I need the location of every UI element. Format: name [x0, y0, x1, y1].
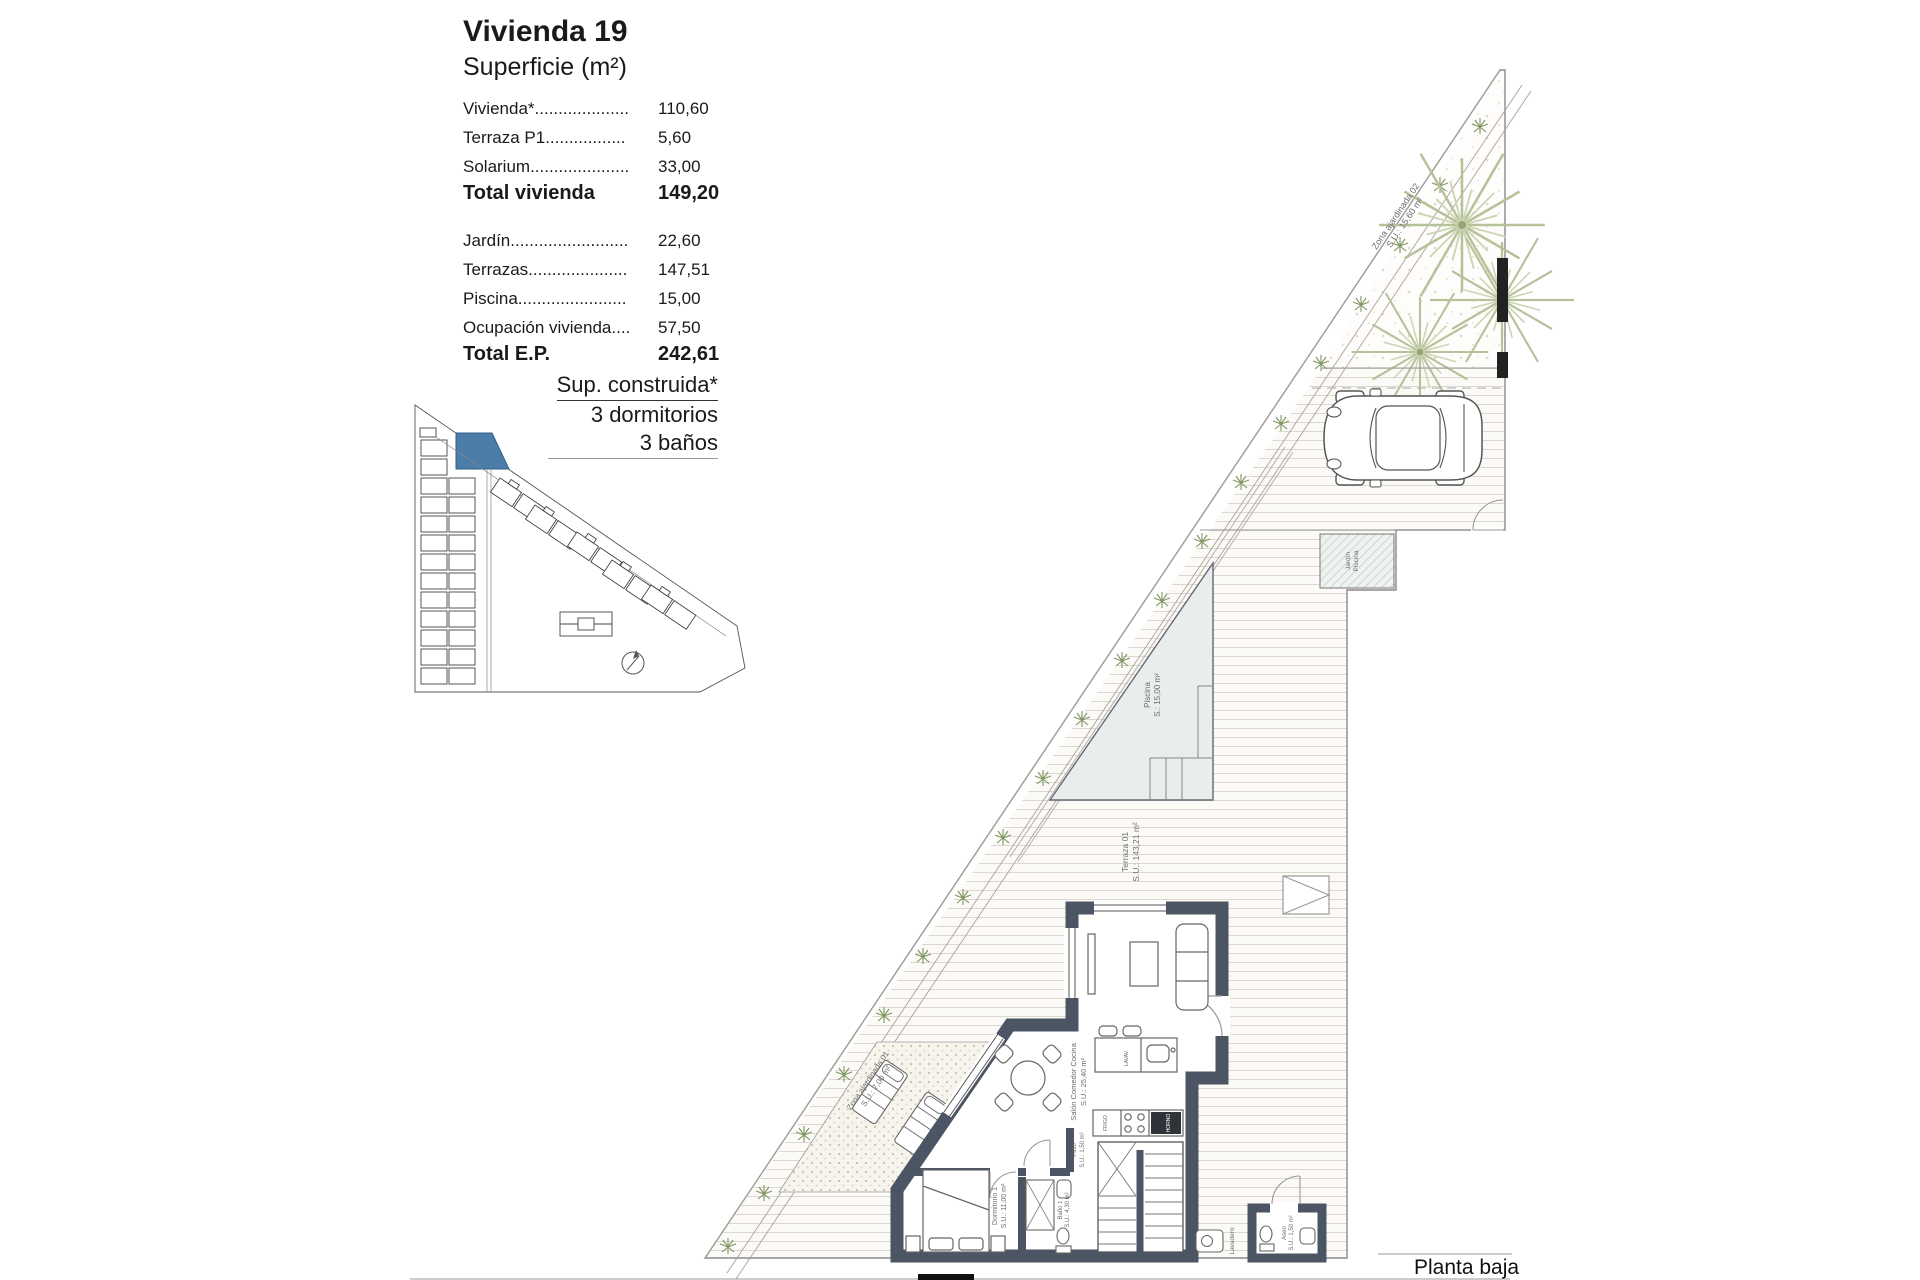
svg-text:S.: 15,00 m²: S.: 15,00 m² — [1153, 673, 1162, 717]
island-sink — [1147, 1045, 1169, 1062]
sink — [1300, 1228, 1315, 1244]
table-row: Vivienda*....................110,60 — [463, 98, 733, 119]
construida-heading: Sup. construida* — [557, 372, 718, 401]
minimap-central-building — [560, 612, 612, 636]
pillow — [959, 1238, 983, 1250]
coffee-table — [1130, 942, 1158, 986]
door-opening — [1026, 1166, 1050, 1178]
dishwasher-label: LAVAV. — [1124, 1050, 1130, 1066]
hob-burner — [1125, 1114, 1131, 1120]
table-row: Terraza P1.................5,60 — [463, 127, 733, 148]
svg-text:Piscina: Piscina — [1353, 550, 1360, 571]
window — [1064, 928, 1080, 998]
floor-plan-drawing: Zona ajardinada 02 S.U.: 15,60 m² — [0, 0, 1920, 1280]
oven-label: HORNO — [1166, 1114, 1172, 1133]
lavadero-label: Lavadero — [1229, 1227, 1236, 1254]
table-row: Jardín.........................22,60 — [463, 230, 733, 251]
table-row: Ocupación vivienda....57,50 — [463, 317, 733, 338]
toilet — [1260, 1226, 1272, 1242]
table-row: Terrazas.....................147,51 — [463, 259, 733, 280]
car — [1324, 389, 1482, 487]
hob-burner — [1125, 1126, 1131, 1132]
pillow — [929, 1238, 953, 1250]
wall-pier — [1497, 258, 1508, 322]
svg-text:S.U.: 143,21 m²: S.U.: 143,21 m² — [1131, 822, 1141, 882]
svg-text:Baño 1: Baño 1 — [1058, 1200, 1064, 1220]
svg-text:S.U.: 4,30 m²: S.U.: 4,30 m² — [1065, 1192, 1071, 1227]
svg-text:Aseo: Aseo — [1282, 1226, 1288, 1240]
surface-subtitle: Superficie (m²) — [463, 52, 733, 82]
footer-mark — [918, 1274, 974, 1280]
hob-burner — [1138, 1126, 1144, 1132]
tv-bench — [1088, 934, 1095, 994]
svg-text:S.U.: 11,00 m²: S.U.: 11,00 m² — [1001, 1183, 1008, 1228]
table-total-vivienda: Total vivienda149,20 — [463, 183, 733, 204]
construida-banos: 3 baños — [463, 429, 718, 457]
svg-text:Terraza 01: Terraza 01 — [1120, 832, 1130, 872]
toilet — [1057, 1228, 1069, 1244]
svg-text:Piscina: Piscina — [1143, 682, 1152, 708]
svg-text:Salón Comedor Cocina: Salón Comedor Cocina — [1069, 1042, 1078, 1120]
nightstand — [906, 1236, 920, 1252]
plan-level-label: Planta baja — [1414, 1256, 1519, 1280]
floor-plan-page: Zona ajardinada 02 S.U.: 15,60 m² — [0, 0, 1920, 1280]
svg-text:S.U.: 1,50 m²: S.U.: 1,50 m² — [1080, 1132, 1086, 1167]
staircase — [1098, 1142, 1183, 1252]
svg-text:Paso: Paso — [1072, 1143, 1078, 1157]
construida-block: Sup. construida* 3 dormitorios 3 baños — [463, 372, 718, 457]
window — [1094, 900, 1166, 916]
svg-text:Dormitorio 1: Dormitorio 1 — [992, 1187, 999, 1225]
sofa — [1176, 924, 1208, 1010]
construida-dormitorios: 3 dormitorios — [463, 401, 718, 429]
skylight-icon — [1283, 876, 1329, 914]
dining-table — [1011, 1061, 1045, 1095]
lavadero — [1196, 1230, 1223, 1252]
table-row: Solarium.....................33,00 — [463, 156, 733, 177]
fridge-label: FRIGO — [1103, 1115, 1109, 1131]
svg-text:S.U.: 25,40 m²: S.U.: 25,40 m² — [1079, 1057, 1088, 1106]
nightstand — [991, 1236, 1005, 1252]
pool: Piscina S.: 15,00 m² — [1050, 563, 1213, 800]
hob-burner — [1138, 1114, 1144, 1120]
svg-text:S.U.: 1,50 m²: S.U.: 1,50 m² — [1289, 1215, 1295, 1250]
wall-pier — [1497, 352, 1508, 378]
table-total-ep: Total E.P.242,61 — [463, 344, 733, 365]
stool — [1123, 1026, 1141, 1036]
main-plot: Zona ajardinada 02 S.U.: 15,60 m² — [705, 70, 1574, 1279]
stool — [1099, 1026, 1117, 1036]
page-title: Vivienda 19 — [463, 14, 733, 50]
jardin-piscina-label: Jardín Piscina — [1345, 550, 1360, 571]
construida-rule — [548, 458, 718, 459]
table-row: Piscina.......................15,00 — [463, 288, 733, 309]
surface-panel: Vivienda 19 Superficie (m²) Vivienda*...… — [463, 14, 733, 365]
svg-text:Jardín: Jardín — [1345, 552, 1352, 570]
